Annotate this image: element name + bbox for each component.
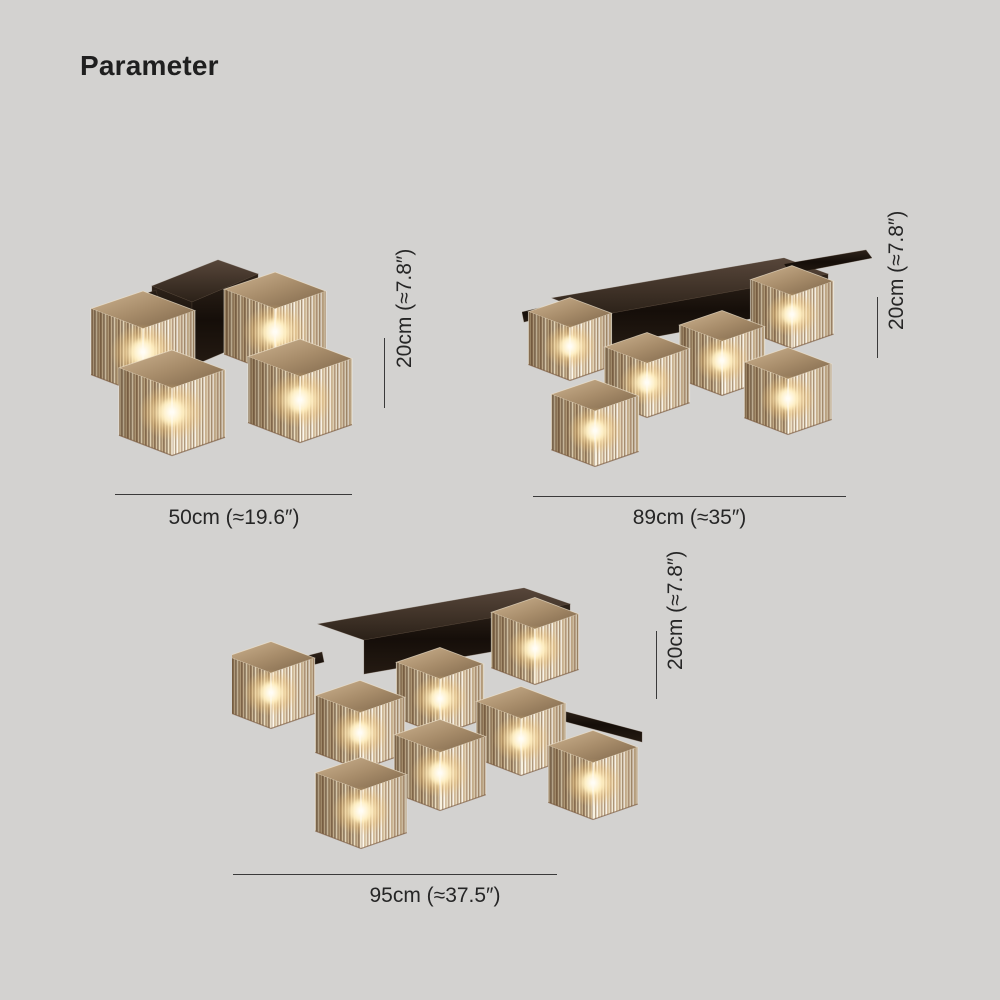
page-title: Parameter (80, 50, 219, 82)
crystal-cube-shade (315, 680, 404, 769)
crystal-cube-shade (119, 350, 225, 456)
fixture-image-8-light (232, 580, 652, 855)
height-dimension-line-3 (656, 631, 657, 699)
crystal-cube-shade (248, 339, 352, 443)
crystal-cube-shade (528, 298, 611, 381)
fixture-image-6-light (522, 236, 872, 481)
width-dimension-label-3: 95cm (≈37.5″) (275, 884, 595, 908)
width-dimension-label-2: 89cm (≈35″) (533, 506, 846, 530)
height-dimension-line-1 (384, 338, 385, 408)
height-dimension-line-2 (877, 297, 878, 358)
crystal-cube-shade (232, 641, 315, 728)
crystal-cube-shade (394, 719, 486, 810)
width-dimension-line-2 (533, 496, 846, 497)
width-dimension-line-3 (233, 874, 557, 875)
fixture-image-4-light (82, 246, 402, 476)
width-dimension-line-1 (115, 494, 352, 495)
crystal-cube-shade (551, 379, 638, 466)
crystal-cube-shade (548, 730, 637, 819)
crystal-cube-shade (491, 597, 578, 684)
parameter-sheet: Parameter (0, 0, 1000, 1000)
crystal-cube-shade (744, 347, 831, 434)
crystal-cube-shade (315, 757, 407, 848)
width-dimension-label-1: 50cm (≈19.6″) (116, 506, 352, 530)
